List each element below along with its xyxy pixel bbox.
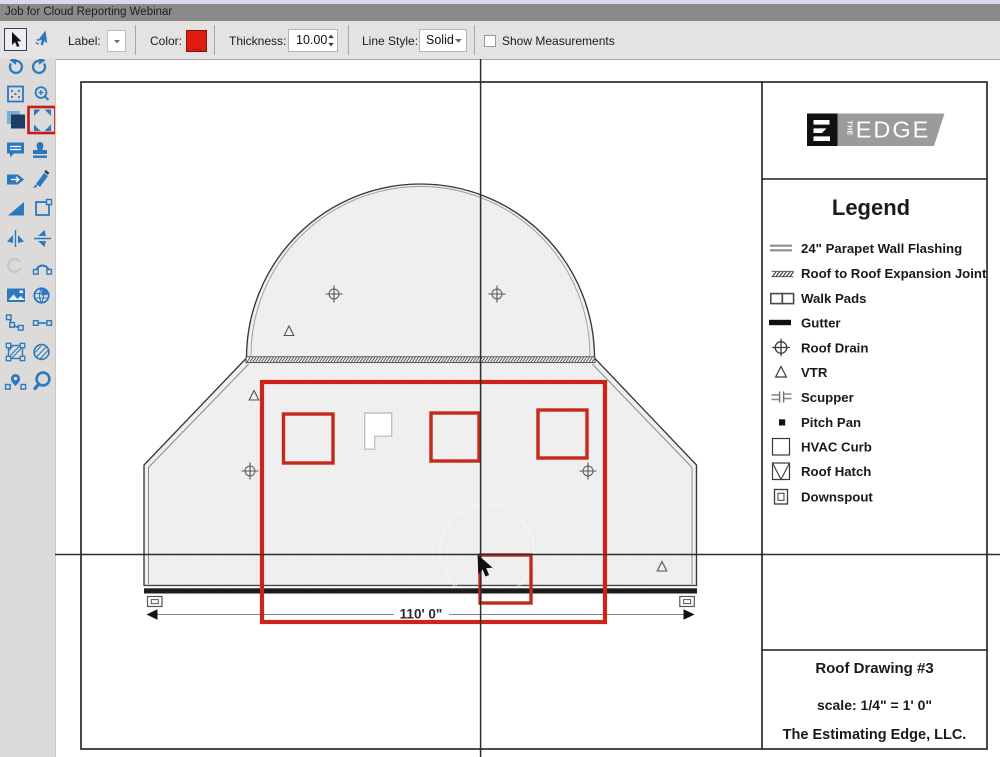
svg-text:EDGE: EDGE: [856, 117, 931, 143]
svg-text:Walk Pads: Walk Pads: [801, 291, 866, 306]
svg-text:Roof Hatch: Roof Hatch: [801, 464, 871, 479]
svg-text:Downspout: Downspout: [801, 490, 873, 505]
svg-text:Roof Drawing #3: Roof Drawing #3: [815, 660, 933, 677]
svg-text:Legend: Legend: [832, 195, 910, 220]
svg-text:scale: 1/4" = 1' 0": scale: 1/4" = 1' 0": [817, 697, 932, 713]
svg-text:VTR: VTR: [801, 365, 828, 380]
svg-text:Roof Drain: Roof Drain: [801, 341, 868, 356]
svg-text:The Estimating Edge, LLC.: The Estimating Edge, LLC.: [783, 727, 967, 743]
svg-text:Gutter: Gutter: [801, 316, 841, 331]
svg-text:Roof to Roof Expansion Joint: Roof to Roof Expansion Joint: [801, 266, 987, 281]
svg-text:HVAC Curb: HVAC Curb: [801, 440, 872, 455]
svg-text:24" Parapet Wall Flashing: 24" Parapet Wall Flashing: [801, 241, 962, 256]
svg-text:Pitch Pan: Pitch Pan: [801, 415, 861, 430]
svg-text:110' 0": 110' 0": [400, 607, 443, 622]
svg-text:THE: THE: [846, 121, 853, 136]
svg-text:Scupper: Scupper: [801, 390, 854, 405]
